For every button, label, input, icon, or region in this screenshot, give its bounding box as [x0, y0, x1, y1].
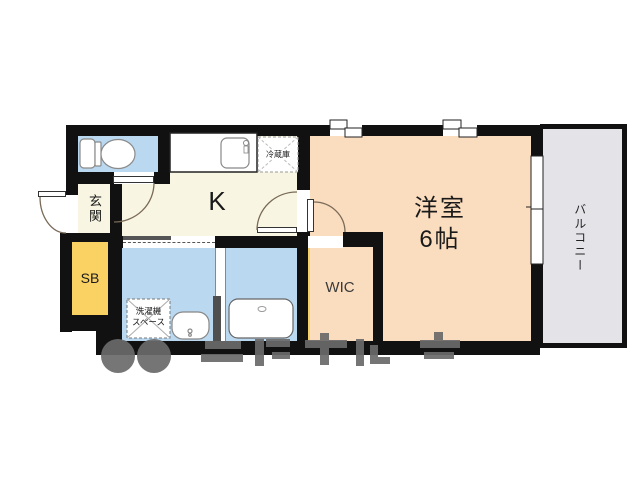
entrance-door-arc	[40, 197, 66, 233]
kitchen-door-arc	[257, 192, 297, 230]
western-room-name: 洋室	[414, 195, 466, 222]
wic-label: WIC	[316, 279, 364, 296]
washer-space-label: 洗濯機スペース	[126, 306, 171, 328]
toilet-icon	[80, 139, 135, 169]
western-room-size: 6帖	[419, 226, 460, 253]
kitchen-label: K	[200, 187, 234, 217]
shoebox-label: SB	[76, 270, 104, 286]
washer-space-label-line2: スペース	[132, 317, 165, 327]
washer-space-label-line1: 洗濯機	[136, 306, 162, 316]
balcony-label: バルコニー	[572, 203, 586, 273]
fixtures-layer	[0, 0, 640, 480]
window-balcony	[526, 156, 543, 264]
wic-door-arc	[314, 202, 345, 232]
window-top-1	[330, 120, 362, 137]
kitchen-sink-icon	[170, 133, 257, 172]
washbasin-icon	[172, 312, 209, 339]
floor-plan: 玄関 SB K 冷蔵庫 洗濯機スペース WIC 洋室6帖 バルコニー	[0, 0, 640, 480]
refrigerator-label: 冷蔵庫	[265, 150, 291, 159]
window-top-2	[443, 120, 477, 137]
western-room-label: 洋室6帖	[385, 193, 495, 255]
toilet-door-arc	[114, 183, 154, 222]
bathtub-icon	[229, 299, 293, 338]
entrance-label: 玄関	[86, 194, 101, 224]
